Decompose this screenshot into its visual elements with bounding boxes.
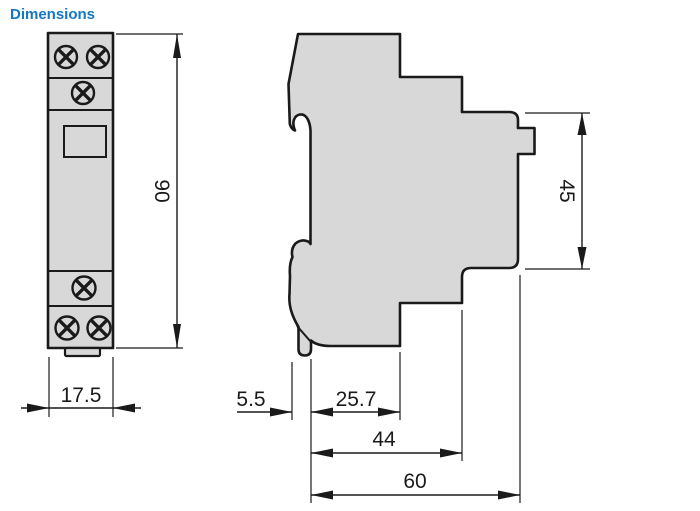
arrow-right-icon bbox=[378, 408, 400, 417]
dimension-value: 5.5 bbox=[236, 388, 265, 411]
arrow-left-icon bbox=[113, 404, 135, 413]
screw-head-icon bbox=[56, 317, 79, 340]
dimension-front-width: 17.5 bbox=[21, 357, 141, 417]
arrow-down-icon bbox=[173, 324, 181, 348]
dimension-front-height: 90 bbox=[116, 34, 183, 348]
arrow-down-icon bbox=[578, 247, 587, 269]
side-view-body bbox=[289, 34, 535, 356]
side-view bbox=[289, 34, 535, 356]
arrow-up-icon bbox=[173, 34, 181, 58]
screw-head-icon bbox=[55, 46, 77, 68]
screw-head-icon bbox=[72, 82, 94, 104]
technical-drawing: 90 17.5 45 bbox=[0, 0, 700, 511]
dimension-value: 90 bbox=[150, 179, 173, 202]
arrow-left-icon bbox=[311, 408, 333, 417]
arrow-left-icon bbox=[311, 491, 333, 500]
front-view-mounting-foot bbox=[65, 348, 100, 356]
dimension-upper-depth: 25.7 bbox=[311, 352, 400, 420]
dimension-value: 45 bbox=[555, 179, 578, 202]
arrow-right-icon bbox=[498, 491, 520, 500]
screw-head-icon bbox=[73, 277, 96, 300]
arrow-right-icon bbox=[270, 408, 292, 417]
screw-head-icon bbox=[87, 46, 109, 68]
front-view-body bbox=[48, 33, 113, 348]
arrow-right-icon bbox=[440, 449, 462, 458]
arrow-up-icon bbox=[578, 113, 587, 135]
dimension-value: 60 bbox=[403, 470, 426, 493]
dimension-value: 44 bbox=[372, 428, 396, 451]
dimensions-drawing-page: Dimensions bbox=[0, 0, 700, 511]
dimension-value: 25.7 bbox=[336, 388, 377, 411]
arrow-right-icon bbox=[27, 404, 49, 413]
screw-head-icon bbox=[88, 317, 111, 340]
front-view bbox=[48, 33, 113, 356]
dimension-clip-depth: 5.5 bbox=[236, 359, 311, 503]
arrow-left-icon bbox=[311, 449, 333, 458]
dimension-value: 17.5 bbox=[61, 384, 102, 407]
